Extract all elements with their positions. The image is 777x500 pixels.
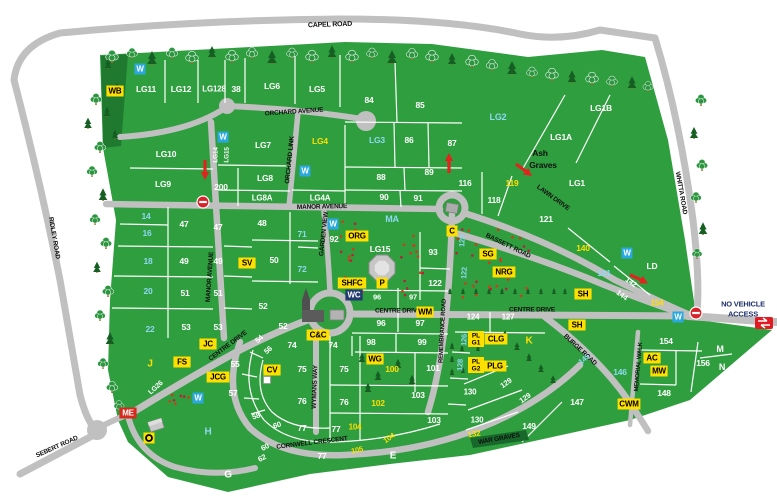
label-87: 87 (447, 138, 457, 148)
label-lg15: LG15 (223, 147, 231, 163)
badge-sg: SG (479, 249, 496, 260)
no-entry-icon (690, 307, 702, 319)
label-77: 77 (317, 451, 327, 461)
rose-dot (507, 278, 510, 281)
rose-dot (412, 235, 415, 238)
rose-dot (464, 282, 467, 285)
label-89: 89 (424, 167, 434, 177)
label-centre-drive: CENTRE DRIVE (509, 307, 556, 314)
label-76: 76 (339, 397, 349, 407)
label-h: H (204, 427, 211, 438)
label-120: 120 (457, 235, 466, 247)
rose-dot (523, 245, 526, 248)
svg-text:C: C (449, 227, 455, 236)
label-75: 75 (339, 364, 349, 374)
svg-text:CWM: CWM (619, 400, 639, 409)
label-122: 122 (428, 278, 442, 288)
rose-dot (505, 288, 508, 291)
label-e: E (390, 451, 397, 462)
svg-text:SG: SG (482, 250, 493, 259)
chapel-lg15-icon (369, 255, 395, 281)
label-47: 47 (179, 219, 189, 229)
badge-shfc: SHFC (338, 278, 366, 289)
rose-dot (348, 259, 351, 262)
rose-dot (471, 254, 474, 257)
label-lg1a: LG1A (550, 132, 572, 142)
badge-cwm: CWM (618, 399, 641, 410)
rose-dot (488, 285, 491, 288)
badge-p: P (377, 278, 388, 289)
badge-w: W (328, 219, 339, 230)
rose-dot (422, 272, 425, 275)
label-18: 18 (143, 256, 153, 266)
rose-dot (406, 287, 409, 290)
label-lg15: LG15 (370, 244, 391, 254)
svg-text:W: W (194, 394, 202, 403)
svg-text:AC: AC (646, 354, 658, 363)
label-88: 88 (376, 172, 386, 182)
label-76: 76 (297, 396, 307, 406)
svg-text:SH: SH (578, 290, 589, 299)
label-lg14: LG14 (212, 147, 220, 163)
svg-text:CLG: CLG (488, 335, 504, 344)
label-121: 121 (539, 214, 553, 224)
badge-jc: JC (199, 339, 216, 350)
label-86: 86 (404, 135, 414, 145)
badge-pl-g1: PLG1 (468, 331, 484, 347)
label-147: 147 (570, 397, 584, 407)
label-lg4: LG4 (312, 136, 328, 146)
label-98: 98 (366, 337, 376, 347)
svg-text:JCG: JCG (210, 373, 226, 382)
badge-sv: SV (238, 258, 255, 269)
svg-text:MW: MW (652, 367, 666, 376)
label-53: 53 (181, 322, 191, 332)
label-91: 91 (413, 193, 423, 203)
badge-wg: WG (366, 354, 383, 365)
label-n: N (719, 362, 725, 372)
label-127: 127 (502, 313, 515, 322)
label-97: 97 (409, 293, 417, 302)
label-84: 84 (364, 95, 374, 105)
label-77: 77 (331, 424, 341, 434)
badge-clg: CLG (485, 334, 508, 345)
turning-circle (219, 98, 235, 114)
svg-text:SV: SV (242, 259, 253, 268)
label-lg1b: LG1B (590, 103, 612, 113)
rose-dot (404, 294, 407, 297)
label-149: 149 (522, 421, 536, 431)
label-55: 55 (230, 359, 240, 369)
label-90: 90 (379, 192, 389, 202)
label-lg128: LG128 (202, 85, 226, 94)
label-lg10: LG10 (156, 149, 177, 159)
label-lg2: LG2 (490, 112, 507, 122)
rose-dot (520, 295, 523, 298)
label-124: 124 (467, 313, 480, 322)
label-102: 102 (371, 398, 385, 408)
badge-me: ME (119, 408, 136, 419)
label-16: 16 (142, 228, 152, 238)
rose-dot (475, 294, 478, 297)
cemetery-map-figure: CAPEL ROADORCHARD AVENUEORCHARD LINKMANO… (0, 0, 777, 500)
label-48: 48 (257, 218, 267, 228)
badge-w: W (135, 64, 146, 75)
rose-dot (400, 256, 403, 259)
label-38: 38 (231, 84, 241, 94)
svg-text:C&C: C&C (310, 331, 327, 340)
label-119: 119 (505, 178, 519, 188)
cemetery-map-svg: CAPEL ROADORCHARD AVENUEORCHARD LINKMANO… (0, 0, 777, 500)
label-49: 49 (213, 256, 223, 266)
label-lg8: LG8 (257, 173, 273, 183)
label-126: 126 (459, 334, 468, 346)
label-52: 52 (258, 301, 268, 311)
label-156: 156 (696, 358, 710, 368)
rose-dot (403, 244, 406, 247)
rose-dot (419, 271, 422, 274)
svg-text:CV: CV (267, 366, 279, 375)
rose-dot (455, 252, 458, 255)
rose-dot (475, 280, 478, 283)
rose-dot (183, 395, 186, 398)
rose-dot (173, 399, 176, 402)
badge-nrg: NRG (493, 267, 516, 278)
label-lg7: LG7 (255, 140, 271, 150)
label-22: 22 (145, 324, 155, 334)
label-57: 57 (228, 388, 238, 398)
label-154: 154 (659, 336, 673, 346)
label-manor-avenue: MANOR AVENUE (297, 203, 348, 211)
badge-org: ORG (346, 231, 369, 242)
rose-dot (340, 235, 343, 238)
label-96: 96 (373, 293, 381, 302)
rose-dot (461, 228, 464, 231)
label-14: 14 (141, 211, 151, 221)
svg-text:FS: FS (177, 358, 188, 367)
svg-text:W: W (623, 249, 631, 258)
badge-wb: WB (106, 86, 123, 97)
rose-dot (340, 251, 343, 254)
svg-text:SHFC: SHFC (342, 279, 363, 288)
svg-text:W: W (674, 313, 682, 322)
cv-building (264, 377, 271, 384)
svg-text:ORG: ORG (348, 232, 366, 241)
label-77: 77 (297, 423, 307, 433)
label-74: 74 (328, 340, 338, 350)
label-ash: Ash (532, 148, 547, 158)
badge-wm: WM (416, 307, 433, 318)
label-130: 130 (471, 416, 484, 425)
no-entry-icon (197, 196, 209, 208)
rose-dot (168, 400, 171, 403)
label-j: J (147, 359, 152, 370)
rose-dot (171, 394, 174, 397)
badge-pl-g2: PLG2 (468, 357, 484, 373)
badge-sh: SH (574, 289, 591, 300)
label-49: 49 (179, 256, 189, 266)
badge-mw: MW (650, 366, 667, 377)
label-132: 132 (467, 429, 482, 440)
rose-dot (180, 395, 183, 398)
rose-dot (354, 223, 357, 226)
rose-dot (488, 261, 491, 264)
label-lg1: LG1 (569, 178, 585, 188)
svg-text:PLG1: PLG1 (472, 333, 481, 347)
label-92: 92 (329, 234, 339, 244)
rose-dot (352, 248, 355, 251)
label-ma: MA (385, 214, 399, 224)
rose-dot (409, 252, 412, 255)
label-lg6: LG6 (264, 81, 280, 91)
rose-dot (401, 290, 404, 293)
label-47: 47 (213, 222, 223, 232)
label-k: K (525, 336, 533, 347)
label-lg4a: LG4A (310, 194, 331, 203)
rose-dot (341, 221, 344, 224)
church-annex (330, 310, 344, 320)
rose-dot (525, 287, 528, 290)
badge-o (144, 433, 155, 444)
rose-dot (496, 285, 499, 288)
label-130: 130 (464, 388, 477, 397)
label-ld: LD (647, 261, 658, 271)
badge-w: W (300, 166, 311, 177)
rose-dot (511, 236, 514, 239)
badge-c: C (447, 226, 458, 237)
label-lg5: LG5 (309, 84, 325, 94)
label-200: 200 (214, 182, 228, 192)
label-20: 20 (143, 286, 153, 296)
label-141: 141 (597, 268, 611, 278)
svg-text:NRG: NRG (495, 268, 512, 277)
label-122: 122 (459, 267, 468, 279)
label-97: 97 (415, 318, 425, 328)
label-128: 128 (455, 359, 464, 371)
svg-text:W: W (219, 133, 227, 142)
label-access: ACCESS (728, 310, 758, 319)
label-lg8a: LG8A (252, 194, 273, 203)
rose-dot (174, 403, 177, 406)
label-51: 51 (213, 288, 223, 298)
badge-w: W (193, 393, 204, 404)
label-lg12: LG12 (171, 84, 192, 94)
badge-c-c: C&C (307, 330, 330, 341)
svg-text:SH: SH (572, 321, 583, 330)
svg-text:PLG: PLG (487, 362, 503, 371)
label-96: 96 (376, 318, 386, 328)
label-51: 51 (180, 288, 190, 298)
label-99: 99 (417, 337, 427, 347)
rose-dot (497, 228, 500, 231)
label-74: 74 (287, 340, 297, 350)
label-148: 148 (657, 388, 671, 398)
rose-dot (462, 296, 465, 299)
svg-text:WG: WG (368, 355, 381, 364)
label-118: 118 (487, 195, 501, 205)
svg-text:W: W (329, 220, 337, 229)
label-m: M (716, 344, 723, 354)
label-103: 103 (411, 390, 425, 400)
label-centre-drive: CENTRE DRIVE (375, 308, 422, 315)
label-g: G (224, 470, 232, 481)
rose-dot (417, 255, 420, 258)
turning-circle (356, 111, 376, 131)
badge-w: W (622, 248, 633, 259)
badge-fs: FS (173, 357, 190, 368)
label-no-vehicle: NO VEHICLE (721, 300, 765, 309)
rose-dot (351, 254, 354, 257)
svg-text:W: W (301, 167, 309, 176)
svg-text:ME: ME (122, 409, 134, 418)
label-52: 52 (278, 321, 288, 331)
svg-text:W: W (136, 65, 144, 74)
label-53: 53 (213, 322, 223, 332)
rose-dot (519, 237, 522, 240)
rose-dot (468, 229, 471, 232)
label-104: 104 (349, 423, 362, 432)
svg-text:WC: WC (348, 291, 361, 300)
svg-text:PLG2: PLG2 (472, 359, 481, 373)
rose-dot (472, 285, 475, 288)
label-85: 85 (415, 100, 425, 110)
rose-dot (489, 288, 492, 291)
label-116: 116 (458, 178, 472, 188)
turning-circle (87, 420, 107, 440)
rose-dot (403, 280, 406, 283)
label-100: 100 (385, 364, 399, 374)
badge-plg: PLG (484, 361, 507, 372)
label-93: 93 (428, 247, 438, 257)
rose-dot (348, 255, 351, 258)
label-154: 154 (651, 299, 664, 308)
badge-sh: SH (568, 320, 585, 331)
label-lg9: LG9 (155, 179, 171, 189)
svg-text:JC: JC (203, 340, 213, 349)
svg-text:WB: WB (109, 87, 122, 96)
label-75: 75 (297, 364, 307, 374)
label-50: 50 (269, 255, 279, 265)
rose-dot (415, 251, 418, 254)
label-72: 72 (297, 264, 307, 274)
badge-ac: AC (643, 353, 660, 364)
label-101: 101 (426, 363, 440, 373)
label-lg3: LG3 (369, 135, 385, 145)
rose-dot (187, 396, 190, 399)
label-71: 71 (297, 229, 307, 239)
badge-cv: CV (263, 365, 280, 376)
roundabout-building (445, 203, 458, 214)
badge-w: W (673, 312, 684, 323)
rose-dot (499, 260, 502, 263)
badge-wc: WC (345, 290, 362, 301)
svg-text:WM: WM (418, 308, 432, 317)
label-graves: Graves (529, 160, 557, 170)
label-140: 140 (576, 243, 590, 253)
badge-jcg: JCG (207, 372, 230, 383)
label-146: 146 (613, 367, 627, 377)
rose-dot (413, 244, 416, 247)
label-lg11: LG11 (136, 84, 156, 94)
label-103: 103 (427, 415, 441, 425)
rail-station-icon (755, 317, 773, 329)
rose-dot (475, 243, 478, 246)
badge-w: W (218, 132, 229, 143)
svg-text:P: P (379, 279, 385, 288)
